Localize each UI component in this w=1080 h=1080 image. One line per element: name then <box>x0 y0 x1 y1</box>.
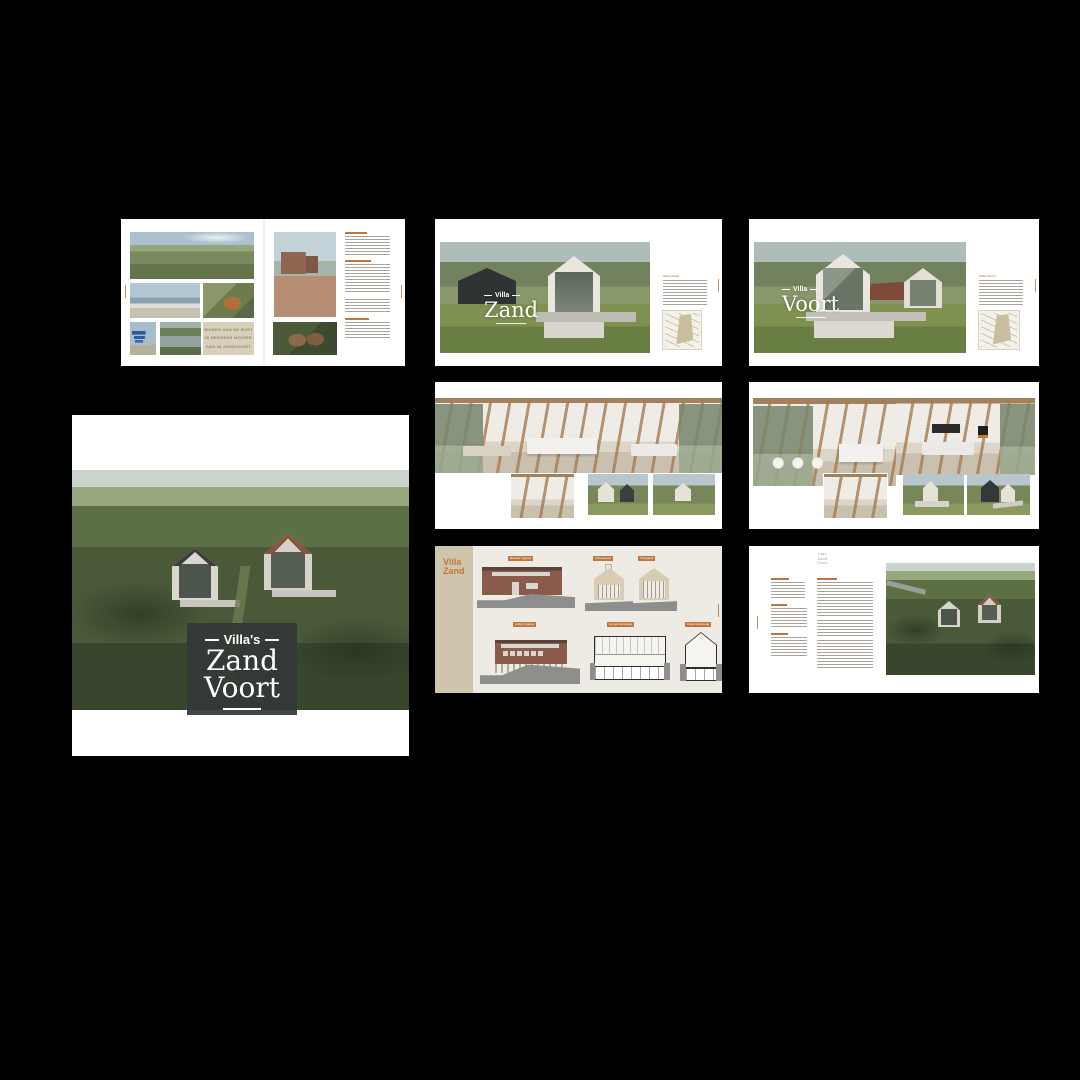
closing-road <box>886 580 926 595</box>
inset-basement <box>915 501 949 507</box>
inset-interior-stairs <box>823 473 888 519</box>
page-edge-marker-right <box>1035 279 1036 292</box>
hero-tagline-rule <box>496 323 526 324</box>
sofa <box>922 442 974 455</box>
contact-body-paragraph-3 <box>817 640 873 668</box>
elevation-body <box>495 640 567 664</box>
contact-body-paragraph-2 <box>817 620 873 636</box>
hero-title-villa-zand: Villa Zand <box>484 292 538 324</box>
drawings-sidebar-title: Villa Zand <box>443 558 465 577</box>
section-gable-inner <box>686 633 716 667</box>
inset-gable-2 <box>620 484 634 502</box>
hero-tagline-rule <box>796 317 826 318</box>
fireplace <box>978 426 988 438</box>
ground-left <box>590 663 595 680</box>
ground-left <box>680 664 686 681</box>
hero-name: Voort <box>782 294 839 315</box>
drawing-tag-1: Rechter zijgevel <box>508 556 533 561</box>
spread-gutter <box>263 219 265 366</box>
page-edge-marker-right <box>718 279 719 292</box>
glass-facade <box>598 585 621 598</box>
inset-interior-lounge <box>510 473 575 519</box>
hero-title-villa-voort: Villa Voort <box>782 286 839 318</box>
dash-right <box>512 295 520 296</box>
photo-beach-boulevard <box>130 283 200 318</box>
photo-fox <box>203 283 254 318</box>
basement-wall <box>814 321 894 338</box>
window-wall-left <box>435 404 483 473</box>
intro-heading-1 <box>345 232 367 234</box>
drawing-tag-6: Korte doorsnede <box>685 622 711 627</box>
page-contact[interactable]: Villa's Zand Voort <box>749 546 1039 693</box>
sofa <box>631 444 677 456</box>
closing-villa-2-roof <box>978 595 1001 605</box>
quote-block: WONEN AAN DE RUST IS NERGENS MOOIER DAN … <box>203 322 254 355</box>
intro-paragraph-2 <box>345 264 390 294</box>
quote-line-1: WONEN AAN DE RUST <box>204 326 253 334</box>
door <box>512 582 519 595</box>
elevation-front <box>631 564 677 612</box>
window-row <box>501 651 545 656</box>
window-wall-right <box>1000 404 1035 475</box>
photo-deer <box>273 322 337 355</box>
contact-group-3 <box>771 637 807 657</box>
intro-heading-3 <box>345 318 369 320</box>
glass-facade <box>643 581 666 598</box>
gable-elevation <box>594 568 624 600</box>
quote-line-3: DAN IN ZANDVOORT <box>204 343 253 351</box>
dash-left <box>484 295 492 296</box>
elevation-rear <box>585 564 633 612</box>
photo-village-square <box>274 232 336 317</box>
page-villa-zand-hero[interactable]: Villa Zand Villa Zand <box>435 219 722 366</box>
kitchen-island <box>839 444 883 462</box>
section-floors <box>594 636 666 668</box>
mini-logo-word2: Voort <box>817 561 828 565</box>
ground-mass <box>477 594 575 608</box>
site-plan-villa-voort <box>978 310 1020 350</box>
basement-wall <box>544 322 604 338</box>
aside-heading: Villa Zand <box>663 274 707 278</box>
page-villa-zand-interior[interactable] <box>435 382 722 529</box>
contact-mini-logo: Villa's Zand Voort <box>817 554 828 565</box>
inset-exterior-two-villas <box>588 474 648 515</box>
villa-gable-silhouette <box>548 256 600 312</box>
photo-dune-lake <box>160 322 201 355</box>
intro-paragraph-4 <box>345 322 390 340</box>
contact-group-2 <box>771 608 807 628</box>
inset-exterior-rear <box>967 474 1030 515</box>
intro-text-column <box>345 232 390 358</box>
cover-villa-zand-glass <box>179 564 211 598</box>
drawing-tag-5: Lange doorsnede <box>607 622 634 627</box>
inset-gable-3 <box>675 483 691 501</box>
page-intro-spread[interactable]: WONEN AAN DE RUST IS NERGENS MOOIER DAN … <box>121 219 405 366</box>
elevation-body <box>482 567 562 595</box>
drawing-tag-2: Achtergevel <box>593 556 613 561</box>
photo-villa-voort-exterior: Villa Voort <box>754 242 966 353</box>
cover-villa-voort-silhouette <box>264 534 312 590</box>
dash-right <box>265 639 279 641</box>
page-drawings[interactable]: Villa Zand Rechter zijgevel Achtergevel … <box>435 546 722 693</box>
dining-chairs <box>767 456 823 470</box>
ground-right <box>716 664 722 681</box>
photo-road-signs <box>130 322 156 355</box>
site-plan-villa-zand <box>662 310 702 350</box>
elevation-right-side <box>477 564 575 609</box>
inset-gable-dark <box>981 480 999 502</box>
gable-elevation <box>639 568 669 600</box>
page-cover[interactable]: Villa's Zand Voort <box>72 415 409 756</box>
inset-gable-light <box>1001 484 1015 502</box>
contact-address-column <box>771 578 811 657</box>
contact-heading-3 <box>771 633 788 635</box>
closing-villa-2 <box>978 595 1001 623</box>
cover-badge: Villa's Zand Voort <box>187 623 297 715</box>
window-band <box>501 644 559 648</box>
contact-heading-2 <box>771 604 787 606</box>
dash-right <box>810 289 818 290</box>
cover-brand-word1: Zand <box>206 647 278 674</box>
section-gable-outline <box>685 632 717 668</box>
cover-villa-voort-glass <box>271 552 305 588</box>
contact-group-1 <box>771 582 805 599</box>
dash-left <box>782 289 790 290</box>
drawing-tag-3: Voorgevel <box>638 556 655 561</box>
contact-heading-1 <box>771 578 789 580</box>
page-edge-marker-right <box>718 604 719 617</box>
window-band <box>492 572 550 576</box>
page-villa-voort-hero[interactable]: Villa Voort Villa Voort <box>749 219 1039 366</box>
cover-villa-zand-silhouette <box>172 548 218 600</box>
photo-villa-zand-exterior: Villa Zand <box>440 242 650 353</box>
cover-brand-word2: Voort <box>204 674 280 701</box>
elevation-left-side <box>480 630 580 685</box>
window <box>526 583 538 589</box>
contact-body-column <box>817 578 873 668</box>
cover-villa-voort-stairs <box>272 590 336 597</box>
closing-villa-1 <box>938 601 960 627</box>
closing-villa-1-glass <box>941 609 957 625</box>
section-basement <box>685 668 719 681</box>
contact-body-heading <box>817 578 837 580</box>
intro-paragraph-1 <box>345 236 390 257</box>
dash-left <box>205 639 219 641</box>
villa-voort-aside: Villa Voort <box>979 274 1023 305</box>
intro-heading-2 <box>345 260 371 262</box>
villa-glass-facade-2 <box>910 280 936 306</box>
page-villa-voort-interior[interactable] <box>749 382 1039 529</box>
photo-aerial-closing <box>886 563 1035 675</box>
quote-text: WONEN AAN DE RUST IS NERGENS MOOIER DAN … <box>204 326 253 351</box>
window-wall-left <box>753 406 813 486</box>
window-wall-right <box>679 404 722 473</box>
closing-villa-2-glass <box>982 605 997 620</box>
tv-screen <box>932 424 960 433</box>
intro-paragraph-3 <box>345 299 390 314</box>
aside-paragraph <box>663 280 707 305</box>
sidebar-title-line2: Zand <box>443 567 465 576</box>
aside-paragraph <box>979 280 1023 305</box>
section-basement <box>594 666 666 680</box>
hero-name: Zand <box>484 300 538 321</box>
ground-right <box>664 663 670 680</box>
cover-villa-zand-stairs <box>180 600 240 607</box>
cover-villa-voort-roof <box>264 534 312 554</box>
section-long <box>590 630 670 685</box>
page-edge-marker-right <box>401 285 402 298</box>
inset-exterior-garden <box>653 474 715 515</box>
drawing-tag-4: Linker zijgevel <box>513 622 536 627</box>
page-edge-marker-left <box>125 285 126 298</box>
contact-body-paragraph-1 <box>817 582 873 616</box>
villa-glass-facade <box>555 272 593 312</box>
photo-interior-living-fireplace <box>896 398 1035 475</box>
page-edge-marker-left <box>757 616 758 629</box>
inset-exterior-front <box>903 474 964 515</box>
terrace-stairs <box>536 312 636 322</box>
quote-line-2: IS NERGENS MOOIER <box>204 334 253 342</box>
inset-gable-1 <box>598 482 614 502</box>
dining-table <box>463 446 511 456</box>
inset-gable-1 <box>923 481 938 501</box>
section-short <box>680 630 722 685</box>
kitchen-island <box>527 438 597 454</box>
photo-dune-landscape <box>130 232 254 279</box>
ground-mass <box>631 600 677 611</box>
villa-zand-aside: Villa Zand <box>663 274 707 305</box>
drawings-sidebar: Villa Zand <box>435 546 473 693</box>
photo-interior-living-kitchen <box>435 398 722 473</box>
aside-heading: Villa Voort <box>979 274 1023 278</box>
ground-mass <box>585 600 633 611</box>
cover-badge-rule <box>223 708 261 710</box>
villa-gable-silhouette-2 <box>904 268 942 308</box>
